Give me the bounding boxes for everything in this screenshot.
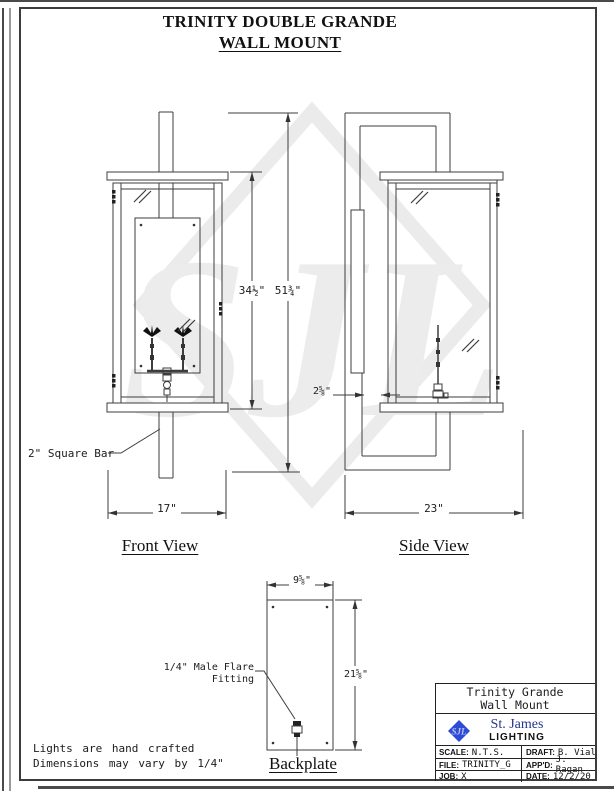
square-bar-note: 2" Square Bar xyxy=(28,447,114,460)
title-block-row-job: JOB: X DATE: 12/2/20 xyxy=(435,770,595,781)
st-james-logo: SJL xyxy=(447,719,471,743)
dim-label-side-standoff: 2⅝" xyxy=(301,386,331,397)
sheet-title-line1: TRINITY DOUBLE GRANDE xyxy=(60,11,500,32)
st-james-logo-monogram: SJL xyxy=(451,727,467,737)
sheet-title: TRINITY DOUBLE GRANDE WALL MOUNT xyxy=(60,11,500,53)
flare-fitting-note-line1: 1/4" Male Flare xyxy=(150,662,254,674)
company-name: St. James xyxy=(477,717,557,733)
craftsmanship-note-line2: Dimensions may vary by 1/4" xyxy=(33,756,224,771)
front-view-label: Front View xyxy=(100,536,220,556)
scale-label: SCALE: xyxy=(439,748,469,757)
watermark-monogram: SJL xyxy=(120,210,503,465)
file-value: TRINITY_G xyxy=(462,760,511,770)
dim-label-backplate-height: 21⅝" xyxy=(336,669,376,680)
title-block-row-file: FILE: TRINITY_G APP'D: J. Ragan xyxy=(435,758,595,770)
drawing-sheet: SJL xyxy=(0,0,614,791)
draft-label: DRAFT: xyxy=(526,748,555,757)
flare-fitting xyxy=(292,721,302,756)
craftsmanship-notes: Lights are hand crafted Dimensions may v… xyxy=(33,741,224,771)
dim-label-backplate-width: 9⅝" xyxy=(282,575,322,586)
title-block-product-line2: Wall Mount xyxy=(435,699,595,712)
fitting-leader-line xyxy=(255,671,295,719)
job-value: X xyxy=(461,772,466,782)
file-label: FILE: xyxy=(439,761,459,770)
job-label: JOB: xyxy=(439,772,458,781)
dim-label-front-width: 17" xyxy=(147,502,187,515)
watermark: SJL xyxy=(120,112,503,498)
flare-fitting-note: 1/4" Male Flare Fitting xyxy=(150,662,254,686)
company-division: LIGHTING xyxy=(477,732,557,743)
sheet-title-line2: WALL MOUNT xyxy=(60,32,500,53)
dim-label-side-depth: 23" xyxy=(414,502,454,515)
appd-label: APP'D: xyxy=(526,761,553,770)
title-block-product: Trinity Grande Wall Mount xyxy=(435,686,595,713)
craftsmanship-note-line1: Lights are hand crafted xyxy=(33,741,224,756)
date-label: DATE: xyxy=(526,772,550,781)
backplate-label: Backplate xyxy=(243,754,363,774)
title-block-company: SJL St. James LIGHTING xyxy=(435,713,595,745)
flare-fitting-note-line2: Fitting xyxy=(150,674,254,686)
side-view-label: Side View xyxy=(374,536,494,556)
date-value: 12/2/20 xyxy=(553,772,591,782)
scale-value: N.T.S. xyxy=(472,748,505,758)
dim-label-front-overall-height: 51¾" xyxy=(266,284,310,297)
